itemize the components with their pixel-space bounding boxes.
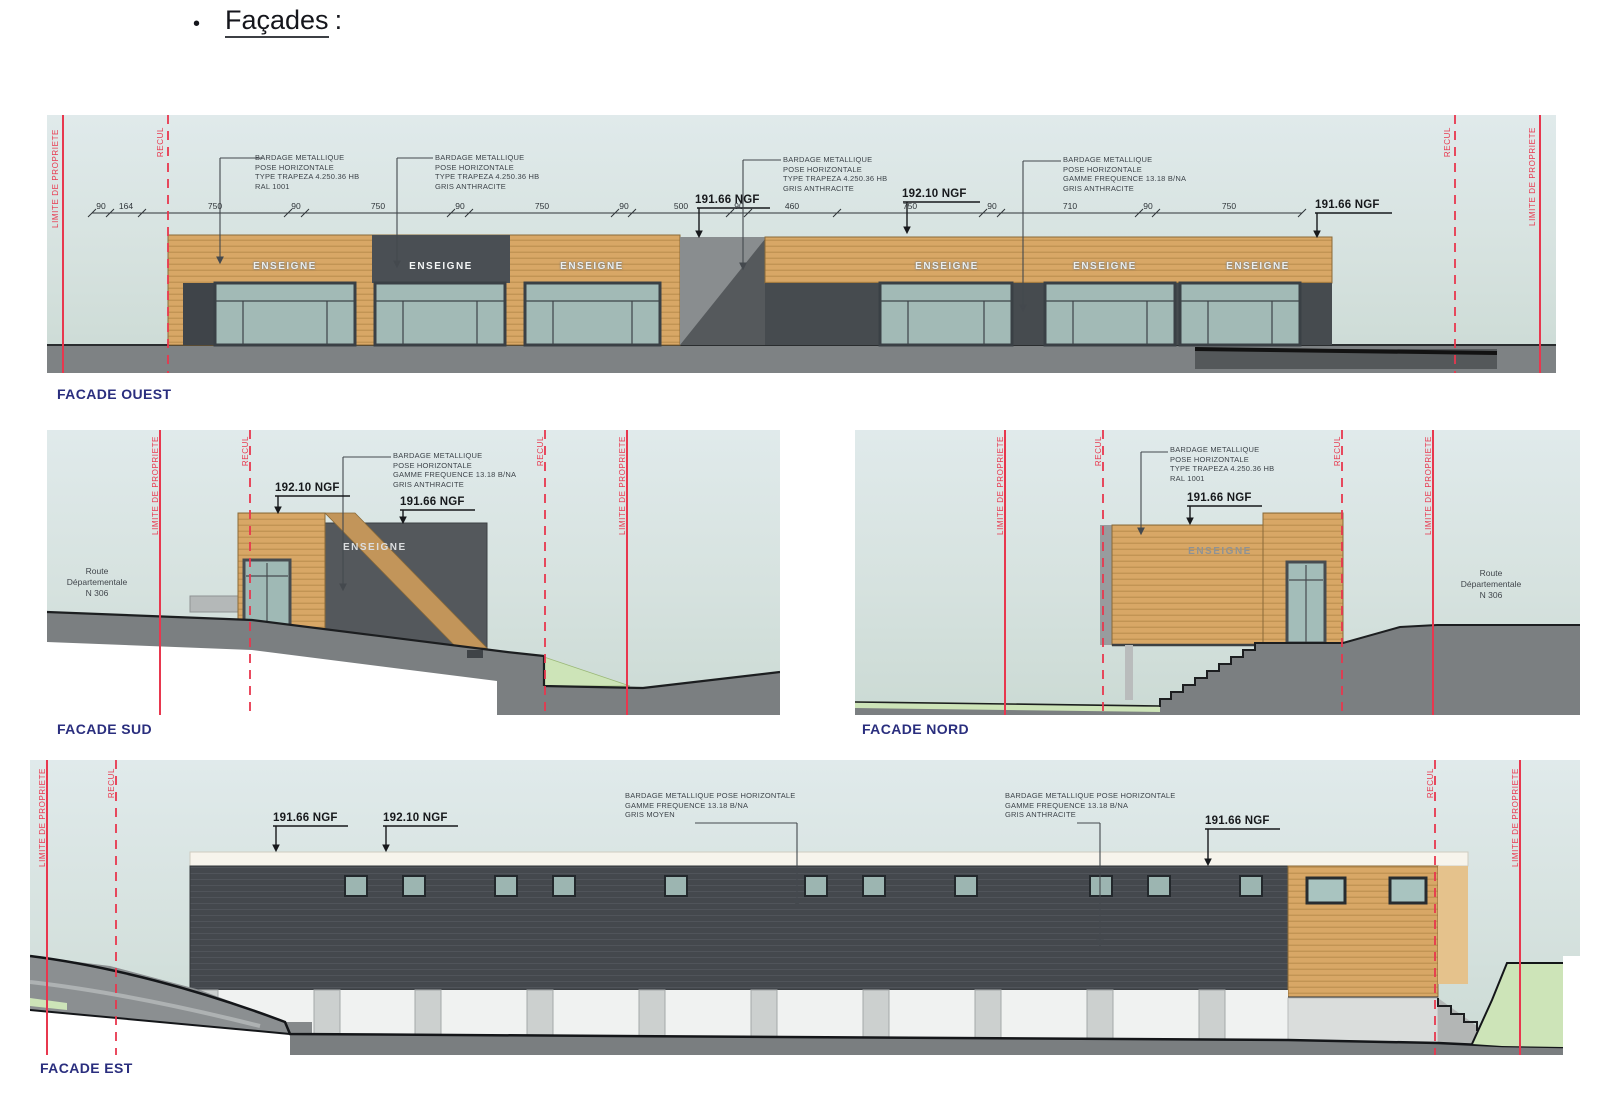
dim-label: 90	[96, 201, 105, 211]
route-line: Route	[55, 566, 139, 577]
recul-label: RECUL	[107, 768, 116, 798]
cladding-annotation: BARDAGE METALLIQUE POSE HORIZONTALE TYPE…	[255, 153, 359, 191]
limite-propriete-label: LIMITE DE PROPRIETE	[618, 436, 627, 535]
annotation-line: POSE HORIZONTALE	[1063, 165, 1186, 175]
enseigne-sign: ENSEIGNE	[1226, 261, 1290, 272]
annotation-line: GAMME FREQUENCE 13.18 B/NA	[1063, 174, 1186, 184]
facade-est-title: FACADE EST	[40, 1060, 133, 1076]
dim-label: 90	[619, 201, 628, 211]
ngf-level-label: 191.66 NGF	[1315, 199, 1380, 211]
facade-nord-panel: LIMITE DE PROPRIETE RECUL RECUL LIMITE D…	[855, 430, 1580, 715]
dim-label: 750	[1222, 201, 1236, 211]
recul-label: RECUL	[241, 436, 250, 466]
dim-label: 750	[535, 201, 549, 211]
facade-sud-title: FACADE SUD	[57, 721, 152, 737]
cladding-annotation: BARDAGE METALLIQUE POSE HORIZONTALE TYPE…	[435, 153, 539, 191]
dim-label: 750	[371, 201, 385, 211]
enseigne-sign: ENSEIGNE	[560, 261, 624, 272]
annotation-line: RAL 1001	[1170, 474, 1274, 484]
annotation-line: BARDAGE METALLIQUE	[1063, 155, 1186, 165]
enseigne-sign: ENSEIGNE	[1188, 546, 1252, 557]
dim-label: 90	[987, 201, 996, 211]
cladding-annotation: BARDAGE METALLIQUE POSE HORIZONTALE GAMM…	[393, 451, 516, 489]
dim-label: 90	[1143, 201, 1152, 211]
annotation-line: TYPE TRAPEZA 4.250.36 HB	[435, 172, 539, 182]
route-label: Route Départementale N 306	[55, 566, 139, 599]
annotation-line: POSE HORIZONTALE	[783, 165, 887, 175]
dim-label: 750	[208, 201, 222, 211]
facade-est-panel: LIMITE DE PROPRIETE RECUL RECUL LIMITE D…	[30, 760, 1580, 1055]
enseigne-sign: ENSEIGNE	[343, 542, 407, 553]
ngf-level-label: 191.66 NGF	[695, 194, 760, 206]
route-line: Route	[1443, 568, 1539, 579]
ngf-level-label: 192.10 NGF	[275, 482, 340, 494]
annotation-line: GAMME FREQUENCE 13.18 B/NA	[393, 470, 516, 480]
route-line: N 306	[1443, 590, 1539, 601]
ngf-level-label: 192.10 NGF	[902, 188, 967, 200]
dim-label: 90	[291, 201, 300, 211]
stair-gap	[680, 237, 765, 345]
building	[190, 852, 1468, 998]
recul-label: RECUL	[1094, 436, 1103, 466]
limite-propriete-label: LIMITE DE PROPRIETE	[1424, 436, 1433, 535]
annotation-line: BARDAGE METALLIQUE	[393, 451, 516, 461]
annotation-line: GAMME FREQUENCE 13.18 B/NA	[1005, 801, 1176, 811]
annotation-line: GRIS ANTHRACITE	[1005, 810, 1176, 820]
dim-label: 164	[119, 201, 133, 211]
ngf-level-label: 192.10 NGF	[383, 812, 448, 824]
facade-nord-title: FACADE NORD	[862, 721, 969, 737]
ngf-level-label: 191.66 NGF	[1205, 815, 1270, 827]
facade-est-drawing	[30, 760, 1580, 1055]
route-line: N 306	[55, 588, 139, 599]
enseigne-sign: ENSEIGNE	[409, 261, 473, 272]
cladding-annotation: BARDAGE METALLIQUE POSE HORIZONTALE GAMM…	[1063, 155, 1186, 193]
annotation-line: TYPE TRAPEZA 4.250.36 HB	[255, 172, 359, 182]
cladding-annotation: BARDAGE METALLIQUE POSE HORIZONTALE GAMM…	[625, 791, 796, 820]
limite-propriete-label: LIMITE DE PROPRIETE	[1511, 768, 1520, 867]
annotation-line: BARDAGE METALLIQUE	[255, 153, 359, 163]
annotation-line: TYPE TRAPEZA 4.250.36 HB	[1170, 464, 1274, 474]
page-title: Façades:	[225, 5, 342, 36]
cladding-annotation: BARDAGE METALLIQUE POSE HORIZONTALE GAMM…	[1005, 791, 1176, 820]
enseigne-sign: ENSEIGNE	[1073, 261, 1137, 272]
ngf-level-label: 191.66 NGF	[1187, 492, 1252, 504]
ngf-markers	[1187, 506, 1262, 524]
annotation-leaders	[1138, 452, 1168, 534]
annotation-line: GRIS ANTHRACITE	[435, 182, 539, 192]
annotation-line: GAMME FREQUENCE 13.18 B/NA	[625, 801, 796, 811]
recul-label: RECUL	[1426, 768, 1435, 798]
facade-ouest-title: FACADE OUEST	[57, 386, 171, 402]
limite-propriete-label: LIMITE DE PROPRIETE	[38, 768, 47, 867]
enseigne-sign: ENSEIGNE	[253, 261, 317, 272]
route-label: Route Départementale N 306	[1443, 568, 1539, 601]
annotation-line: GRIS ANTHRACITE	[783, 184, 887, 194]
facade-sud-panel: LIMITE DE PROPRIETE RECUL RECUL LIMITE D…	[47, 430, 780, 715]
annotation-line: RAL 1001	[255, 182, 359, 192]
dim-label: 90	[734, 201, 743, 211]
dim-label: 500	[674, 201, 688, 211]
annotation-line: BARDAGE METALLIQUE	[435, 153, 539, 163]
ngf-level-label: 191.66 NGF	[273, 812, 338, 824]
annotation-line: BARDAGE METALLIQUE POSE HORIZONTALE	[625, 791, 796, 801]
annotation-line: BARDAGE METALLIQUE POSE HORIZONTALE	[1005, 791, 1176, 801]
annotation-line: POSE HORIZONTALE	[435, 163, 539, 173]
limite-propriete-label: LIMITE DE PROPRIETE	[151, 436, 160, 535]
recul-label: RECUL	[1443, 127, 1452, 157]
facade-ouest-panel: LIMITE DE PROPRIETE RECUL RECUL LIMITE D…	[47, 115, 1556, 373]
dimension-line	[88, 209, 1306, 217]
limite-propriete-label: LIMITE DE PROPRIETE	[1528, 127, 1537, 226]
route-line: Départementale	[1443, 579, 1539, 590]
annotation-line: TYPE TRAPEZA 4.250.36 HB	[783, 174, 887, 184]
dim-label: 710	[1063, 201, 1077, 211]
enseigne-sign: ENSEIGNE	[915, 261, 979, 272]
annotation-line: POSE HORIZONTALE	[255, 163, 359, 173]
recul-label: RECUL	[536, 436, 545, 466]
recul-label: RECUL	[1333, 436, 1342, 466]
annotation-line: GRIS ANTHRACITE	[393, 480, 516, 490]
ngf-markers	[696, 202, 1392, 237]
recul-label: RECUL	[156, 127, 165, 157]
document-page: • Façades:	[0, 0, 1600, 1101]
annotation-line: POSE HORIZONTALE	[393, 461, 516, 471]
dim-label: 90	[455, 201, 464, 211]
cladding-annotation: BARDAGE METALLIQUE POSE HORIZONTALE TYPE…	[1170, 445, 1274, 483]
heading-text: Façades	[225, 5, 329, 38]
bullet-icon: •	[193, 13, 200, 36]
annotation-line: BARDAGE METALLIQUE	[1170, 445, 1274, 455]
ngf-level-label: 191.66 NGF	[400, 496, 465, 508]
annotation-line: BARDAGE METALLIQUE	[783, 155, 887, 165]
limite-propriete-label: LIMITE DE PROPRIETE	[996, 436, 1005, 535]
annotation-line: POSE HORIZONTALE	[1170, 455, 1274, 465]
cladding-annotation: BARDAGE METALLIQUE POSE HORIZONTALE TYPE…	[783, 155, 887, 193]
annotation-line: GRIS MOYEN	[625, 810, 796, 820]
heading-colon: :	[335, 5, 343, 35]
dim-label: 750	[903, 201, 917, 211]
route-line: Départementale	[55, 577, 139, 588]
dim-label: 460	[785, 201, 799, 211]
building-left	[168, 235, 680, 345]
annotation-line: GRIS ANTHRACITE	[1063, 184, 1186, 194]
limite-propriete-label: LIMITE DE PROPRIETE	[51, 129, 60, 228]
